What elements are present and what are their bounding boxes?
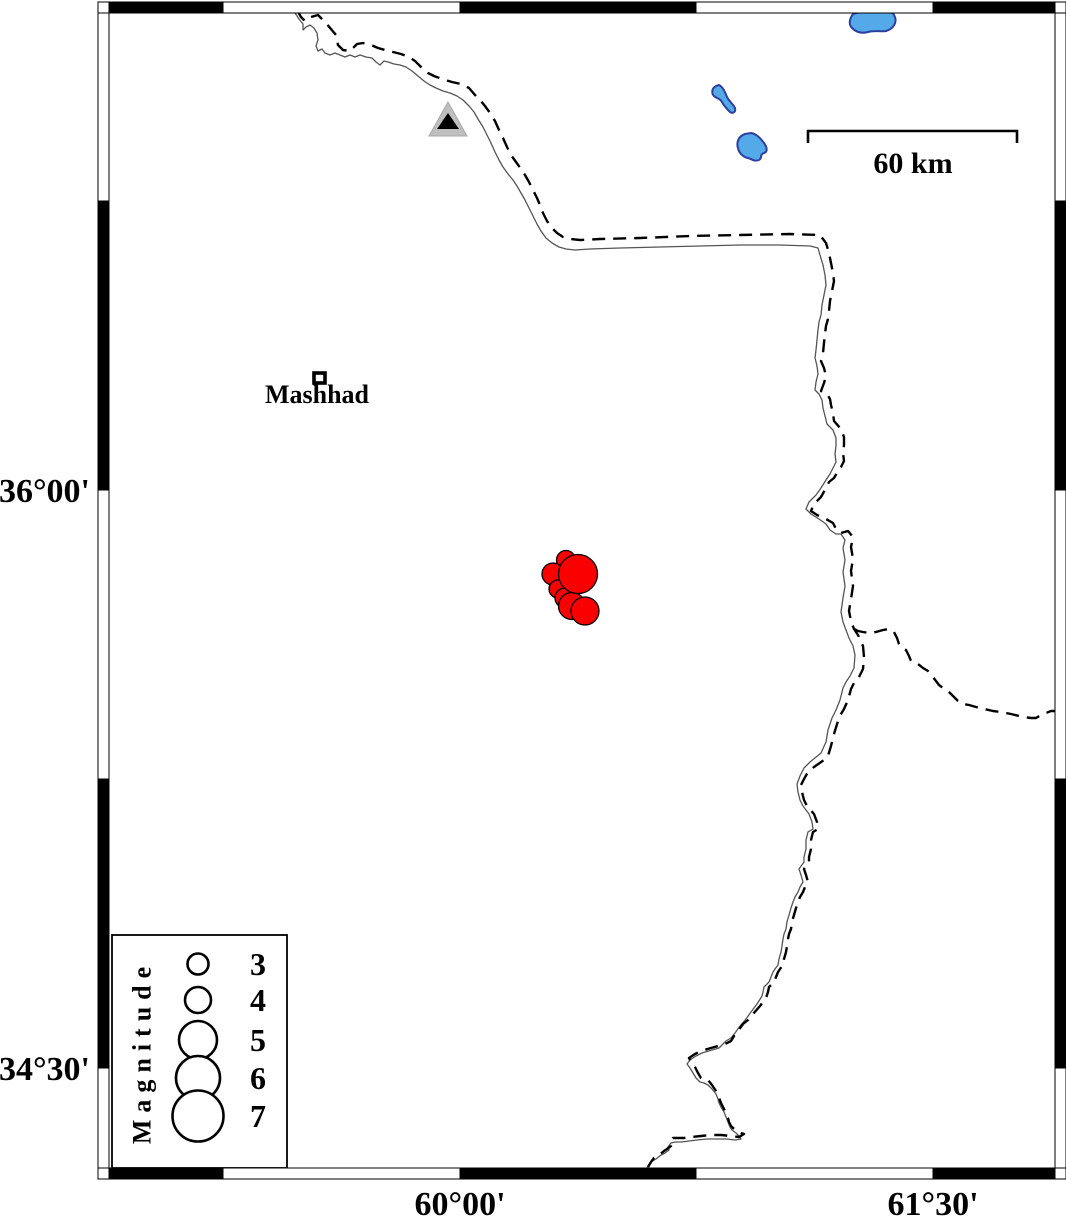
legend-circle <box>179 1021 217 1059</box>
border-branch-east-dashed <box>854 629 1056 718</box>
frame-corner <box>98 1168 109 1179</box>
legend-value: 5 <box>250 1022 266 1058</box>
frame-corner <box>1055 1168 1066 1179</box>
lake <box>712 85 735 113</box>
legend-value: 3 <box>250 946 266 982</box>
scale-bar <box>808 131 1017 143</box>
legend-value: 6 <box>250 1060 266 1096</box>
legend-title: Magnitude <box>128 960 157 1144</box>
legend-circle <box>188 954 209 975</box>
legend-value: 7 <box>250 1098 266 1134</box>
legend-circle <box>185 987 211 1013</box>
scale-bar-label: 60 km <box>873 147 952 180</box>
station-triangle-marker <box>429 102 467 136</box>
lake <box>850 12 896 33</box>
map-svg: Mashhad 60 km Magnitude 3 4 5 6 7 <box>0 0 1066 1219</box>
earthquake-marker <box>559 555 598 594</box>
magnitude-legend: Magnitude 3 4 5 6 7 <box>112 935 287 1168</box>
frame-corner <box>98 2 109 13</box>
legend-circle <box>173 1091 224 1142</box>
earthquake-marker <box>571 597 599 625</box>
map-figure: Mashhad 60 km Magnitude 3 4 5 6 7 <box>0 0 1066 1219</box>
latitude-label-34-30: 34°30' <box>0 1051 90 1088</box>
latitude-label-36-00: 36°00' <box>0 473 90 510</box>
lake <box>737 133 766 161</box>
frame-corner <box>1055 2 1066 13</box>
legend-value: 4 <box>250 982 266 1018</box>
longitude-label-60-00: 60°00' <box>414 1186 505 1219</box>
longitude-label-61-30: 61°30' <box>887 1186 978 1219</box>
city-label-mashhad: Mashhad <box>265 380 370 409</box>
